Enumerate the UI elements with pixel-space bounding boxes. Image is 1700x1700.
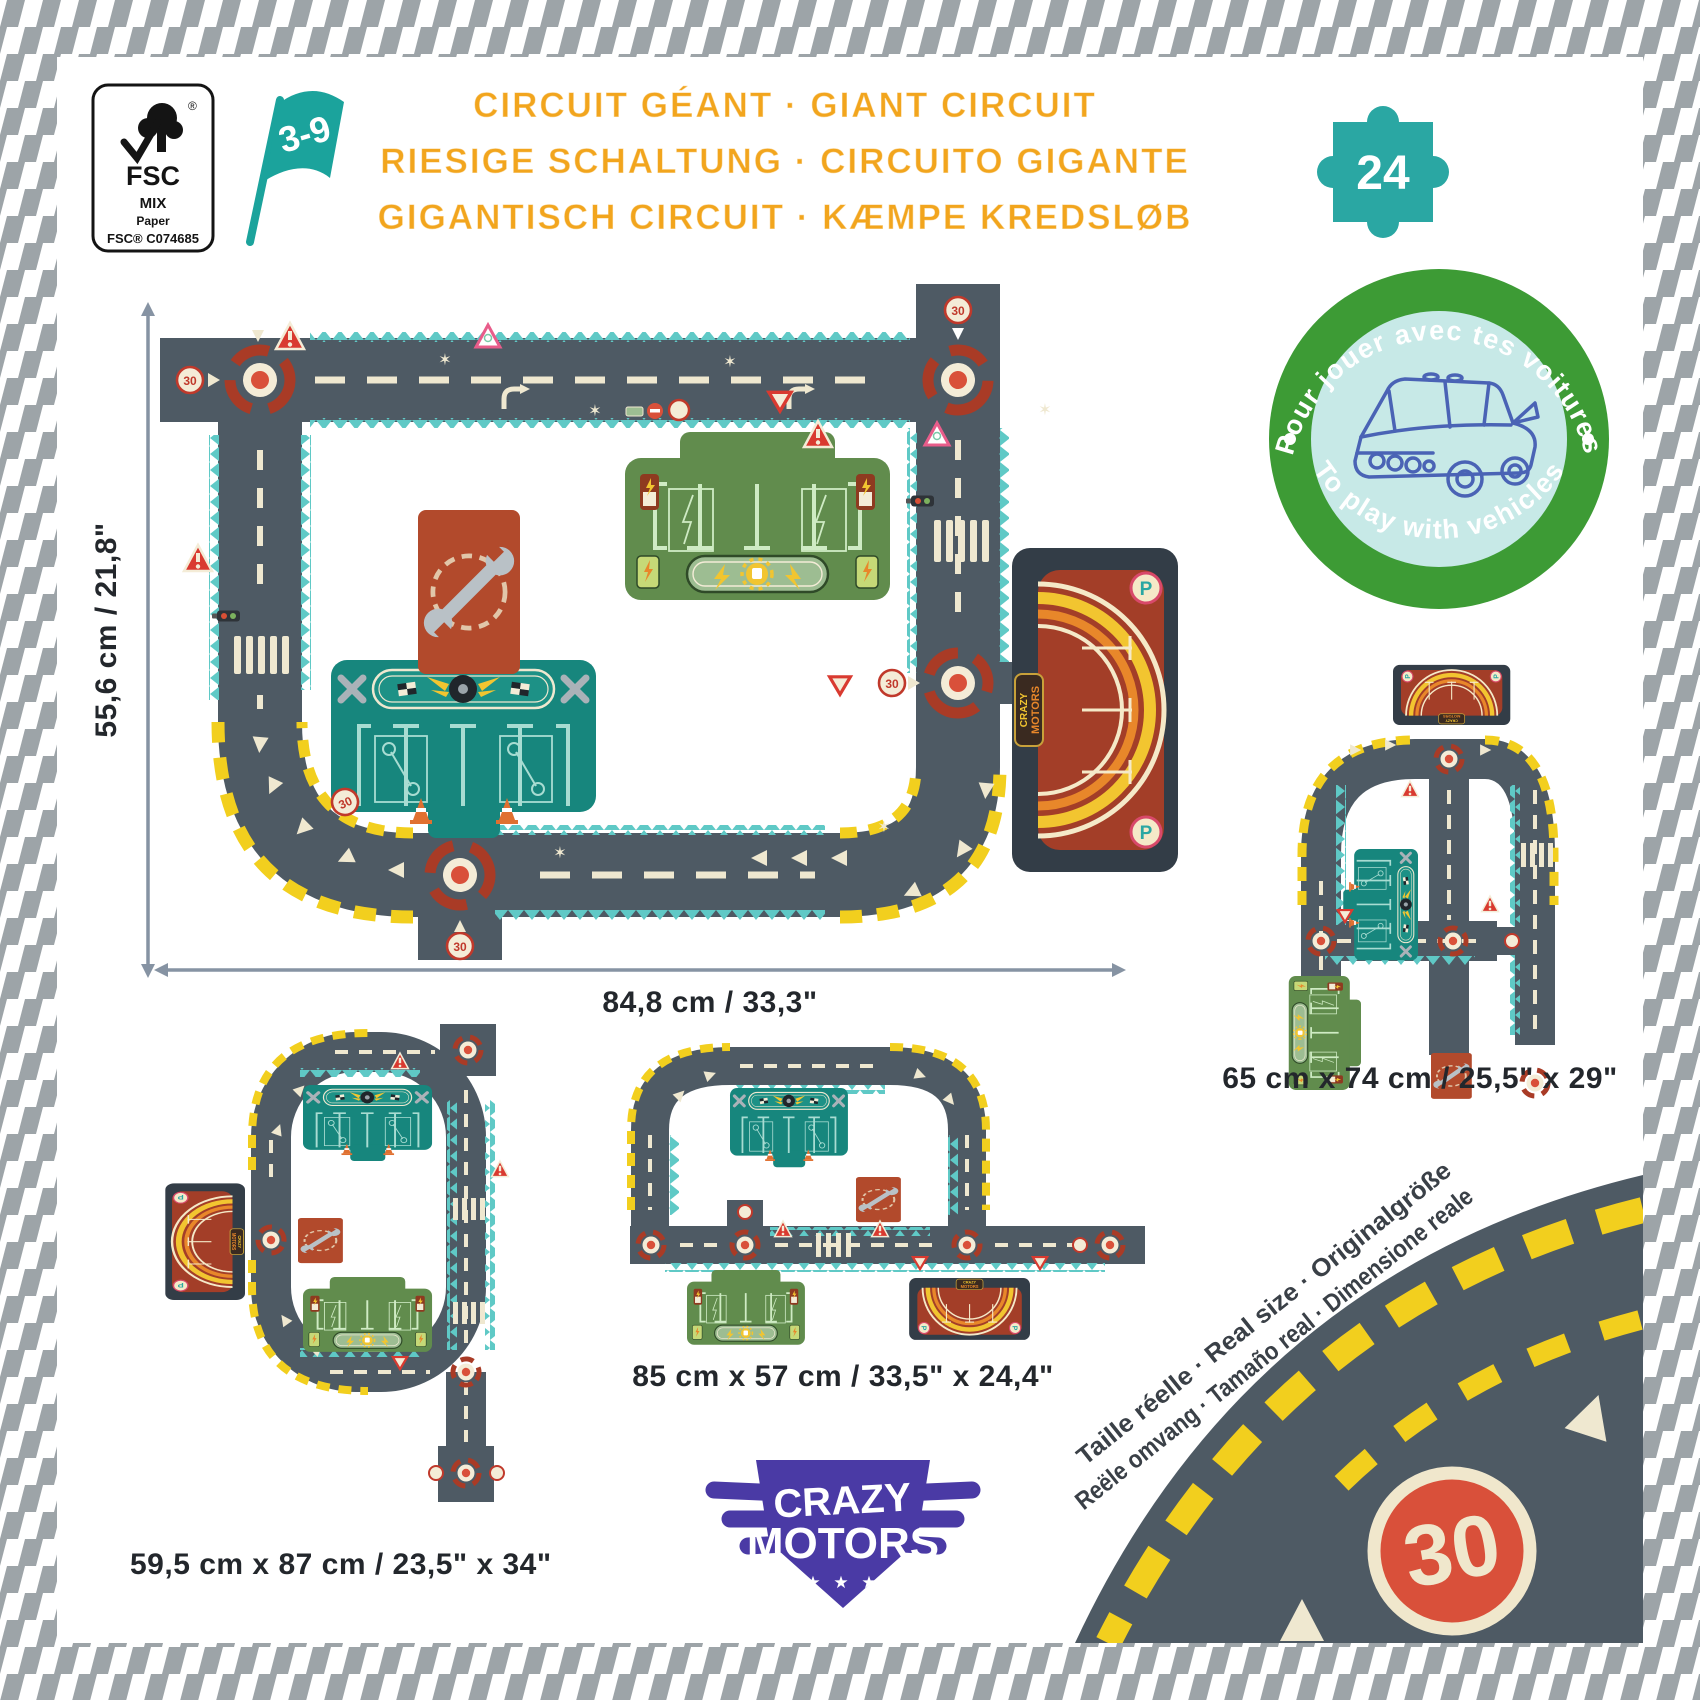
title-line-2: RIESIGE SCHALTUNG · CIRCUITO GIGANTE (360, 134, 1210, 190)
svg-text:MIX: MIX (140, 195, 167, 212)
svg-text:★ ★ ★: ★ ★ ★ (805, 1573, 880, 1592)
svg-text:✶: ✶ (438, 352, 451, 369)
age-flag: 3-9 (222, 80, 352, 258)
play-badge: Pour jouer avec tes voitures To play wit… (1266, 266, 1612, 612)
title-line-1: CIRCUIT GÉANT · GIANT CIRCUIT (360, 78, 1210, 134)
main-height-label: 55,6 cm / 21,8" (90, 522, 124, 737)
speed-sign: 30 (879, 670, 920, 696)
product-title: CIRCUIT GÉANT · GIANT CIRCUIT RIESIGE SC… (360, 78, 1210, 246)
variant-circuit-a (1185, 655, 1560, 1125)
puzzle-box-back: P P CRAZY MOTORS ® FSC M (0, 0, 1700, 1700)
main-circuit-diagram: ✶ ✶ ✶ ✶ ✶ ✶ 30 (140, 270, 1200, 980)
svg-text:MOTORS: MOTORS (747, 1519, 939, 1568)
crazy-motors-logo: CRAZY MOTORS ★ ★ ★ (688, 1422, 998, 1627)
svg-text:FSC: FSC (126, 161, 180, 191)
svg-text:Paper: Paper (136, 214, 170, 228)
svg-text:✶: ✶ (877, 819, 890, 836)
height-dimension-arrow (130, 300, 166, 980)
svg-text:✶: ✶ (553, 845, 566, 862)
svg-text:30: 30 (183, 374, 197, 388)
svg-text:✶: ✶ (723, 354, 736, 371)
svg-text:FSC® C074685: FSC® C074685 (107, 231, 199, 246)
width-dimension-arrow (150, 950, 1130, 990)
svg-text:✶: ✶ (588, 403, 601, 420)
svg-text:30: 30 (951, 304, 965, 318)
main-width-label: 84,8 cm / 33,3" (420, 986, 1000, 1020)
svg-text:24: 24 (1356, 147, 1410, 200)
real-size-swatch: 30 Taille réelle · Real size · Originalg… (980, 1080, 1643, 1643)
svg-text:30: 30 (1397, 1495, 1508, 1606)
variant-circuit-b (150, 1020, 550, 1530)
svg-text:✶: ✶ (1038, 402, 1051, 419)
variant-b-caption: 59,5 cm x 87 cm / 23,5" x 34" (130, 1548, 550, 1582)
svg-text:30: 30 (885, 677, 899, 691)
svg-text:®: ® (188, 99, 197, 113)
title-line-3: GIGANTISCH CIRCUIT · KÆMPE KREDSLØB (360, 190, 1210, 246)
fsc-label: ® FSC MIX Paper FSC® C074685 (90, 82, 216, 254)
piece-count-badge: 24 (1298, 100, 1468, 250)
